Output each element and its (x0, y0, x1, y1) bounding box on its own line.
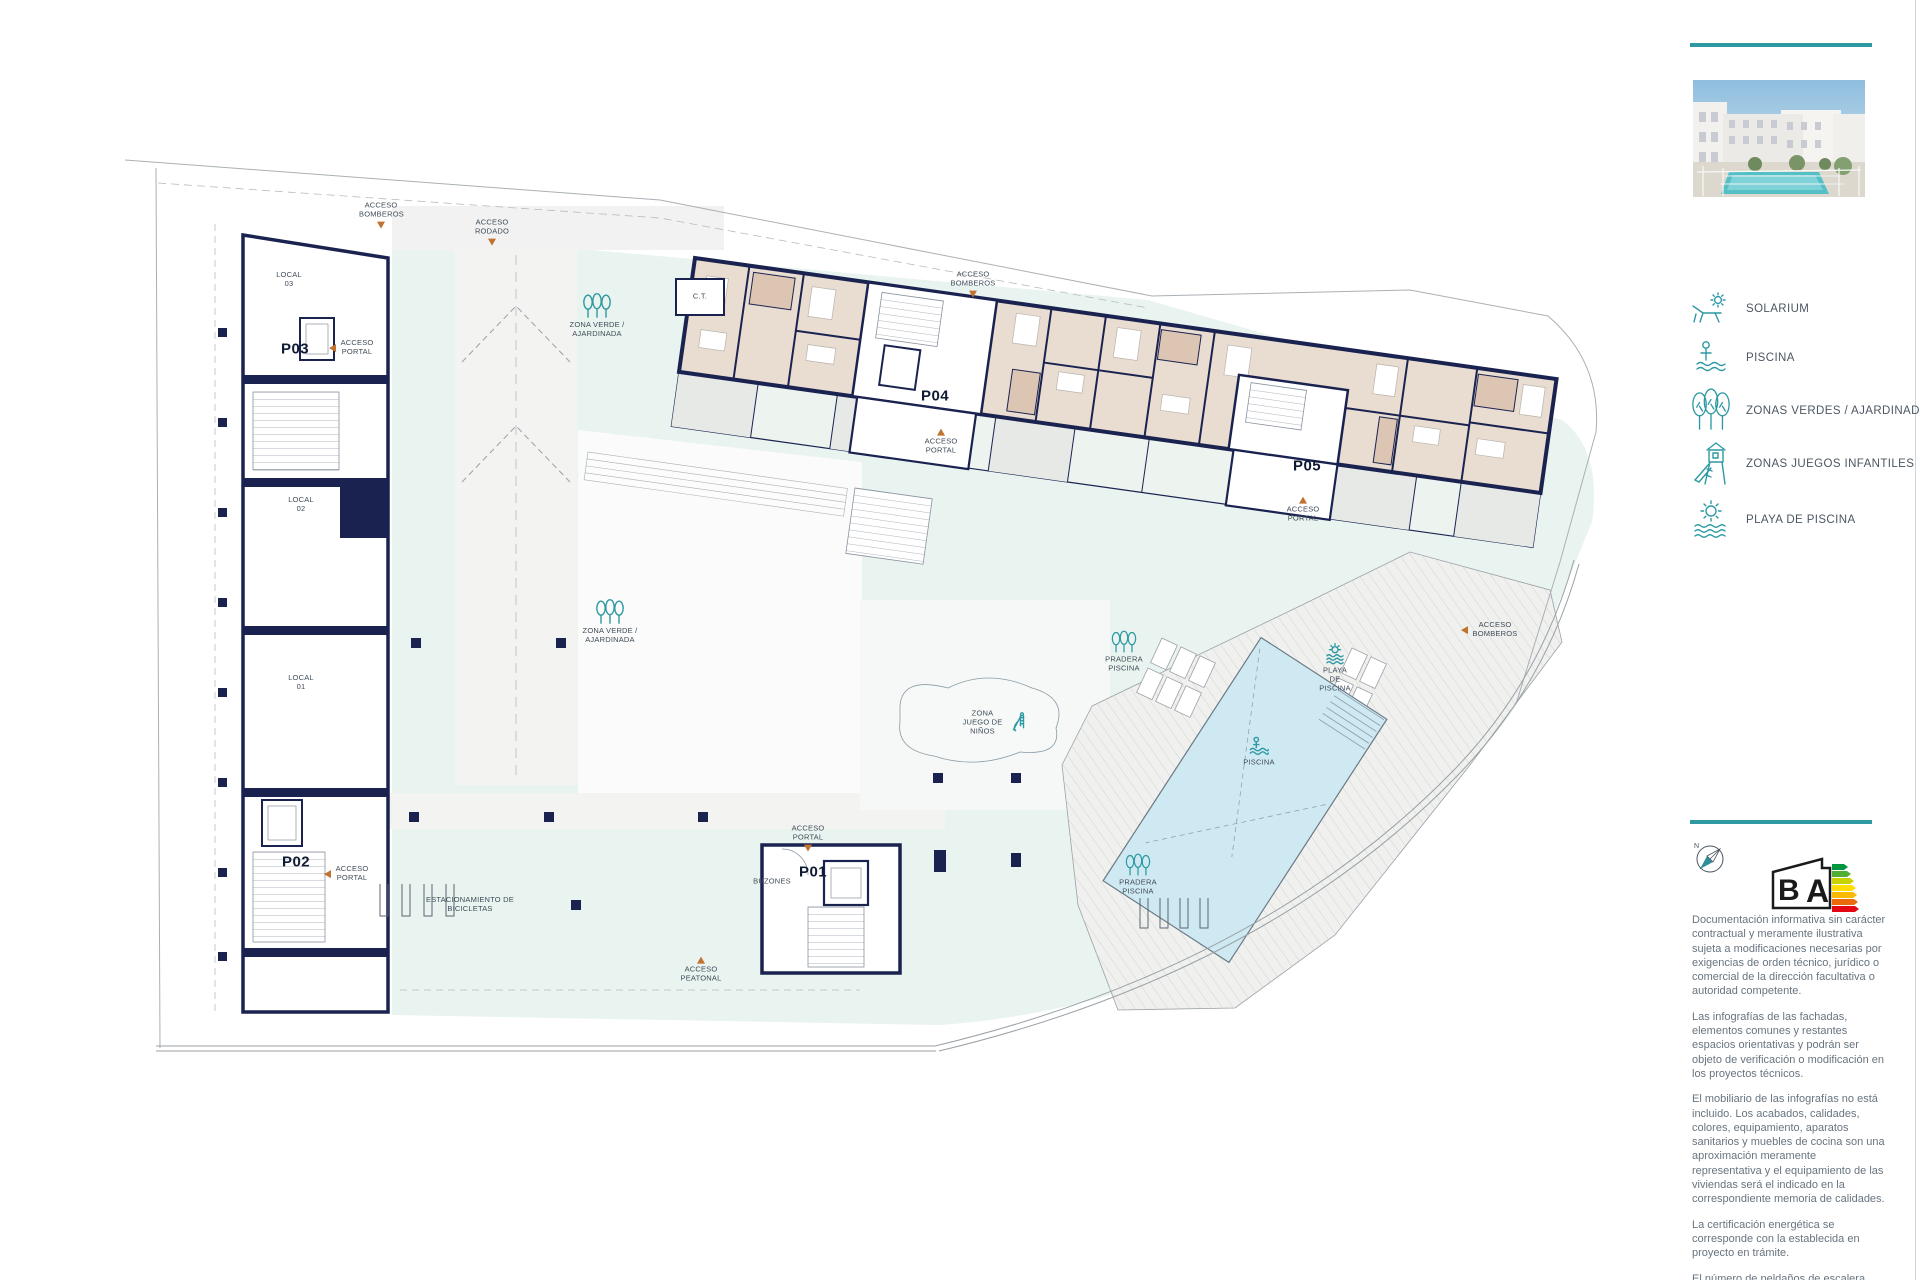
local-03-label: LOCAL 03 (273, 271, 305, 289)
access-marker-icon (969, 290, 977, 297)
estacionamiento-label: ESTACIONAMIENTO DE BICICLETAS (423, 896, 518, 914)
zonas-verdes-icon (1690, 388, 1732, 434)
access-portal-p02: ACCESO PORTAL (324, 865, 370, 883)
floorplan-page: P03 P02 P01 P04 P05 LOCAL 03 LOCAL 02 LO… (0, 0, 1920, 1280)
access-marker-icon (937, 429, 945, 436)
trees-icon (1109, 631, 1139, 654)
zona-verde-mid: ZONA VERDE / AJARDINADA (579, 599, 641, 645)
slide-icon (1010, 712, 1032, 734)
disclaimer-paragraph: El mobiliario de las infografías no está… (1692, 1092, 1888, 1206)
legend-label: ZONAS VERDES / AJARDINADAS (1746, 405, 1920, 417)
legend-item-juegos: ZONAS JUEGOS INFANTILES (1690, 442, 1914, 486)
piscina-icon (1694, 340, 1728, 376)
buzones-label: BUZONES (753, 878, 791, 887)
trees-icon (1123, 854, 1153, 877)
legend-label: ZONAS JUEGOS INFANTILES (1746, 458, 1914, 470)
access-bomberos-right: ACCESO BOMBEROS (1461, 621, 1519, 639)
portal-label-p04: P04 (921, 388, 949, 405)
access-marker-icon (1461, 626, 1468, 634)
compass-icon: N (1691, 840, 1727, 876)
energy-scale-bars (1832, 864, 1859, 912)
playa-piscina-label: PLAYA DE PISCINA (1317, 643, 1353, 694)
access-portal-p01: ACCESO PORTAL (790, 825, 826, 852)
access-marker-icon (697, 957, 705, 964)
access-rodado: ACCESO RODADO (472, 219, 512, 246)
disclaimer-paragraph: Las infografías de las fachadas, element… (1692, 1010, 1888, 1081)
legend-item-zonas-verdes: ZONAS VERDES / AJARDINADAS (1690, 388, 1920, 434)
top-rule (1690, 43, 1872, 47)
access-bomberos-top-left: ACCESO BOMBEROS (359, 202, 403, 229)
portal-label-p03: P03 (281, 341, 309, 358)
legend-item-playa: PLAYA DE PISCINA (1690, 500, 1856, 540)
playa-piscina-icon (1692, 500, 1730, 540)
disclaimer-paragraph: El número de peldaños de escalera dibuja… (1692, 1272, 1888, 1280)
svg-text:A: A (1806, 873, 1829, 909)
info-panel: SOLARIUM PISCINA ZONAS VERDES / AJARDINA… (1685, 0, 1920, 1280)
bottom-rule (1690, 820, 1872, 824)
local-02-label: LOCAL 02 (285, 496, 317, 514)
access-portal-p05: ACCESO PORTAL (1285, 497, 1321, 524)
pradera-piscina-bottom: PRADERA PISCINA (1117, 854, 1159, 897)
portal-label-p05: P05 (1293, 458, 1321, 475)
svg-text:B: B (1778, 874, 1800, 907)
disclaimer-paragraph: Documentación informativa sin carácter c… (1692, 913, 1888, 999)
trees-icon (593, 599, 627, 625)
legend-label: PLAYA DE PISCINA (1746, 514, 1856, 526)
disclaimer-text: Documentación informativa sin carácter c… (1692, 913, 1888, 1280)
solarium-icon (1691, 292, 1731, 326)
panel-border (1915, 0, 1916, 1280)
legend-item-piscina: PISCINA (1690, 340, 1795, 376)
access-marker-icon (804, 844, 812, 851)
access-peatonal: ACCESO PEATONAL (680, 957, 722, 984)
portal-label-p02: P02 (282, 854, 310, 871)
legend-label: PISCINA (1746, 352, 1795, 364)
pradera-piscina-top: PRADERA PISCINA (1103, 631, 1145, 674)
legend-label: SOLARIUM (1746, 303, 1809, 315)
p01-building (762, 845, 900, 973)
access-marker-icon (377, 221, 385, 228)
access-portal-p04: ACCESO PORTAL (923, 429, 959, 456)
sun-waves-icon (1323, 643, 1347, 665)
piscina-label: PISCINA (1243, 737, 1274, 768)
access-marker-icon (488, 238, 496, 245)
access-marker-icon (324, 870, 331, 878)
access-bomberos-top-mid: ACCESO BOMBEROS (950, 271, 996, 298)
ct-label: C.T. (693, 293, 707, 302)
legend-item-solarium: SOLARIUM (1690, 292, 1809, 326)
zona-juego: ZONA JUEGO DE NIÑOS (959, 710, 1032, 737)
energy-certificate-icon: B A (1770, 856, 1860, 914)
svg-text:N: N (1694, 843, 1699, 850)
site-plan (0, 0, 1680, 1280)
access-marker-icon (329, 344, 336, 352)
portal-label-p01: P01 (799, 864, 827, 881)
swimmer-icon (1248, 737, 1270, 757)
zona-verde-top: ZONA VERDE / AJARDINADA (566, 293, 628, 339)
access-portal-p03: ACCESO PORTAL (329, 339, 375, 357)
trees-icon (580, 293, 614, 319)
local-01-label: LOCAL 01 (285, 674, 317, 692)
disclaimer-paragraph: La certificación energética se correspon… (1692, 1218, 1888, 1261)
project-photo (1693, 80, 1865, 197)
juegos-infantiles-icon (1691, 442, 1731, 486)
access-marker-icon (1299, 497, 1307, 504)
